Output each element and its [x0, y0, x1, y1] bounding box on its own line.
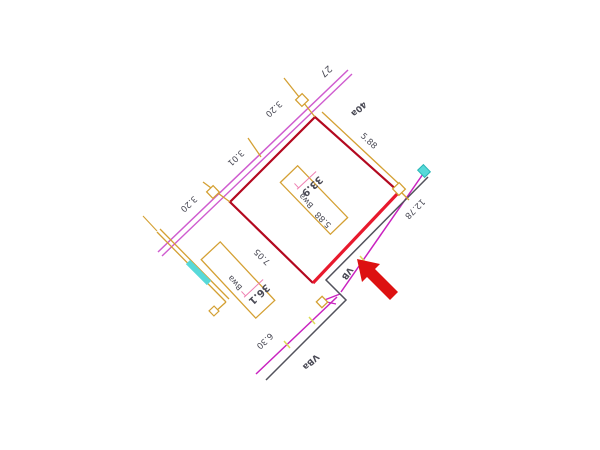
red-arrow-icon — [357, 259, 398, 300]
dimension-label-320-top: 3.20 — [263, 98, 284, 118]
survey-tie-line-east — [322, 112, 398, 183]
fence-line-2 — [160, 229, 229, 299]
parcel-number-361-text: 36.1 — [246, 281, 272, 306]
road-label-vba: VBa — [300, 351, 321, 371]
dimension-label-320-left: 3.20 — [178, 193, 199, 213]
fence-tick — [143, 216, 157, 231]
parcel-number-339-tick — [294, 183, 298, 187]
site-plan-drawing: 27 3.20 40a 5.88 3.01 3.20 33.9 Bwa 5.88… — [0, 0, 600, 450]
dimension-label-588-inner: 5.88 — [313, 209, 333, 230]
survey-node-corner — [316, 296, 327, 307]
labels-layer: 27 3.20 40a 5.88 3.01 3.20 33.9 Bwa 5.88… — [178, 63, 427, 372]
survey-node-foot — [209, 306, 219, 316]
road-line-northeast — [341, 174, 423, 292]
dimension-label-301: 3.01 — [225, 147, 246, 167]
plot-number-label: 27 — [318, 63, 334, 79]
parcel-number-339: 33.9 — [293, 167, 325, 199]
parcel-number-361-tick — [241, 291, 245, 295]
dimension-label-630: 6.30 — [254, 330, 275, 350]
building-label-1: Bwa — [297, 191, 315, 210]
road-label-vb: VB — [339, 265, 355, 281]
utility-marker — [418, 165, 431, 178]
survey-node-east — [393, 183, 406, 196]
parcel-label-40a: 40a — [348, 99, 368, 118]
dimension-label-705: 7.05 — [252, 246, 273, 266]
building-outline-1 — [280, 166, 347, 234]
survey-node-west — [207, 186, 220, 199]
survey-tick-mid — [248, 138, 261, 157]
